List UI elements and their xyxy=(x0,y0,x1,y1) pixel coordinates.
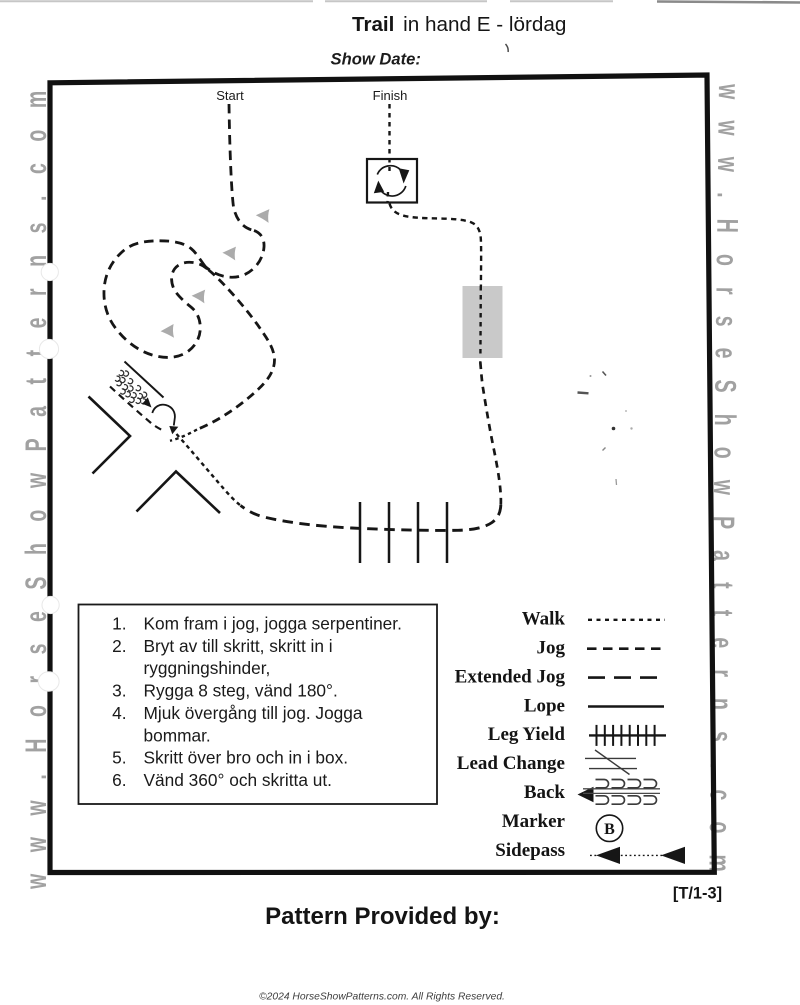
svg-text:5.: 5. xyxy=(112,748,126,768)
svg-text:Walk: Walk xyxy=(522,609,566,630)
svg-text:Pattern Provided by:: Pattern Provided by: xyxy=(265,903,500,930)
svg-text:Vänd 360° och skritta ut.: Vänd 360° och skritta ut. xyxy=(144,770,332,790)
svg-text:©2024 HorseShowPatterns.com. A: ©2024 HorseShowPatterns.com. All Rights … xyxy=(259,992,505,1003)
svg-text:Leg Yield: Leg Yield xyxy=(488,724,566,745)
svg-text:Back: Back xyxy=(524,782,566,803)
svg-text:Mjuk övergång till jog. Jogga: Mjuk övergång till jog. Jogga xyxy=(144,703,363,723)
svg-text:2.: 2. xyxy=(112,636,126,656)
svg-text:Skritt över bro och in i box.: Skritt över bro och in i box. xyxy=(144,748,349,768)
svg-text:Bryt av till skritt, skritt in: Bryt av till skritt, skritt in i xyxy=(144,636,333,656)
svg-text:Finish: Finish xyxy=(373,88,408,103)
svg-text:Sidepass: Sidepass xyxy=(495,840,565,861)
svg-text:Jog: Jog xyxy=(537,638,566,659)
svg-text:Extended Jog: Extended Jog xyxy=(455,666,566,687)
svg-text:Lope: Lope xyxy=(524,695,565,716)
svg-text:B: B xyxy=(604,821,615,838)
svg-text:Trail in hand E - lördag: Trail in hand E - lördag xyxy=(352,13,566,36)
svg-text:Marker: Marker xyxy=(502,811,566,832)
svg-text:bommar.: bommar. xyxy=(144,725,211,745)
svg-text:ryggningshinder,: ryggningshinder, xyxy=(144,658,271,678)
svg-text:[T/1-3]: [T/1-3] xyxy=(673,885,722,903)
svg-text:3.: 3. xyxy=(112,681,126,701)
svg-text:1.: 1. xyxy=(112,614,126,634)
svg-text:Rygga 8 steg, vänd 180°.: Rygga 8 steg, vänd 180°. xyxy=(144,681,338,701)
svg-text:Lead Change: Lead Change xyxy=(457,753,565,774)
svg-text:Start: Start xyxy=(216,88,244,103)
svg-text:6.: 6. xyxy=(112,770,126,790)
svg-text:Kom fram i jog, jogga serpenti: Kom fram i jog, jogga serpentiner. xyxy=(144,614,402,634)
svg-text:4.: 4. xyxy=(112,703,126,723)
svg-text:Show Date:: Show Date: xyxy=(331,50,421,69)
